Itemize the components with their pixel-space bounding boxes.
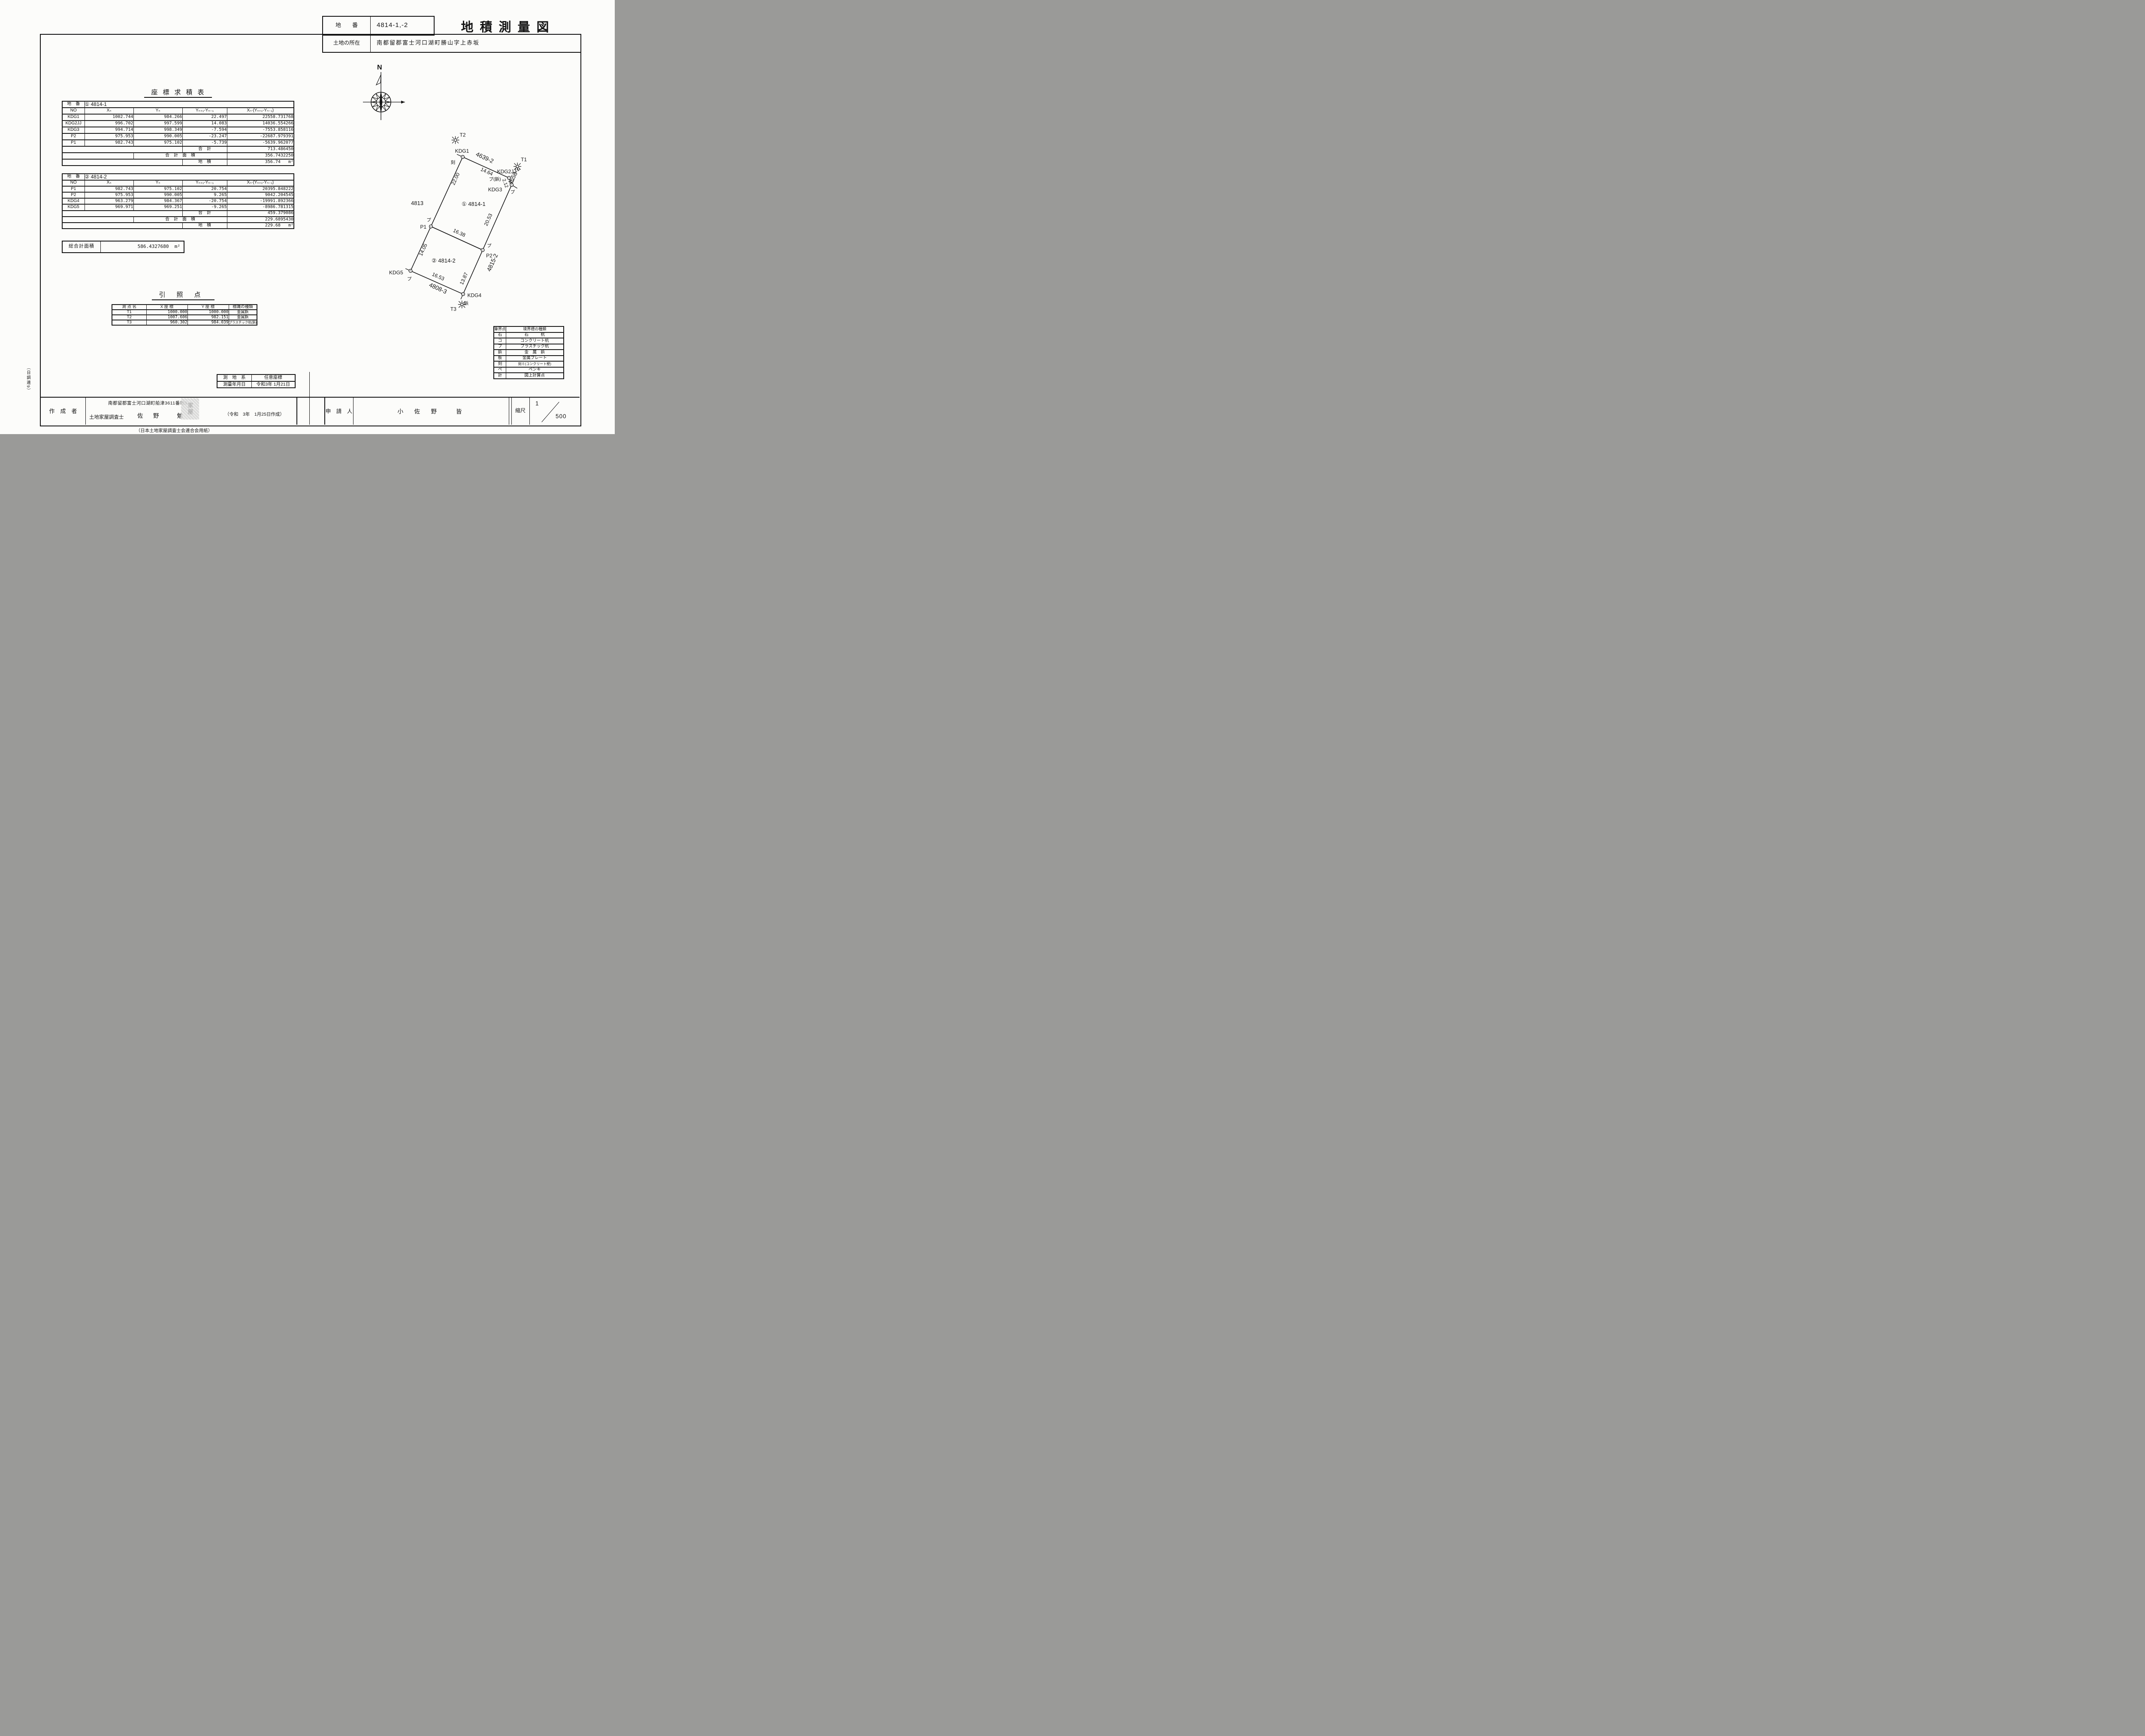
- coord-table-2-cell: -19991.892366: [227, 198, 294, 204]
- coord-table-1-cell: 22.497: [182, 114, 227, 121]
- marker-legend-cell: コンクリート杭: [506, 338, 564, 344]
- station-marker-ray-T3: [459, 306, 461, 308]
- station-marker-ray-T2: [452, 142, 454, 144]
- creator-role: 土地家屋調査士: [89, 414, 124, 420]
- coord-table-1-cell: 356.7432250: [227, 153, 294, 159]
- coord-table-1-cell: Xₙ: [85, 108, 133, 114]
- coord-table-1-cell: -5639.962077: [227, 140, 294, 146]
- coord-table-1-cell: 22558.731768: [227, 114, 294, 121]
- bottom-margin-note: （日本土地家屋調査士会連合会用紙）: [86, 427, 263, 434]
- coord-table-2-cell: 969.971: [85, 204, 133, 210]
- coord-table-1-cell: -5.739: [182, 140, 227, 146]
- coord-table-1-cell: 14.083: [182, 121, 227, 127]
- survey-plot: 14.644639-22.1220.5313.8716.534808-314.0…: [352, 60, 581, 338]
- survey-info-cell: 令和3年 1月21日: [251, 381, 295, 388]
- point-marker-dot-P2: [482, 250, 483, 251]
- coord-table-title: 座標求積表: [62, 88, 294, 97]
- reference-points-cell: 1000.000: [146, 310, 187, 315]
- lot-area-label: ② 4814-2: [432, 257, 456, 264]
- point-label-KDG2JJ: KDG2JJ: [497, 169, 517, 175]
- station-marker-ray-T3: [459, 301, 461, 303]
- marker-legend-cell: プ: [494, 344, 506, 350]
- station-marker-ray-T2: [456, 142, 459, 144]
- lot-number-label: 地 番: [323, 17, 371, 35]
- coord-table-2-cell: 990.005: [133, 192, 182, 198]
- station-marker-circle-T1: [516, 165, 519, 168]
- edge-label: 20.53: [483, 212, 493, 226]
- coord-table-2-cell: 20395.848222: [227, 186, 294, 192]
- marker-legend-cell: プラスチック杭: [506, 344, 564, 350]
- marker-legend-cell: ペンキ: [506, 367, 564, 373]
- point-label-T3: T3: [450, 306, 456, 312]
- marker-legend-cell: 板: [494, 356, 506, 362]
- point-marker-dot-KDG5: [410, 270, 411, 271]
- edge-label: 16.38: [452, 227, 466, 238]
- point-label-KDG1: KDG1: [455, 148, 469, 154]
- coord-table-2-cell: [62, 211, 182, 217]
- coord-table-1: 地 番① 4814-1NOXₙYₙYₙ₊₁-Yₙ₋₁Xₙ·(Yₙ₊₁-Yₙ₋₁)…: [62, 101, 294, 166]
- coord-table-1-cell: -23.247: [182, 133, 227, 140]
- creator-address: 南都留郡富士河口湖町船津3611番地9: [108, 400, 187, 406]
- applicant-name: 小 佐 野 皆: [353, 407, 509, 415]
- reference-points-cell: 測 点 名: [112, 305, 146, 310]
- point-label-KDG4: KDG4: [467, 293, 481, 299]
- coord-table-1-cell: P2: [62, 133, 85, 140]
- coord-table-2-cell: 9.265: [182, 192, 227, 198]
- reference-points-cell: 982.151: [187, 315, 229, 320]
- lot-area-label: ① 4814-1: [462, 201, 486, 207]
- coord-table-1-cell: [62, 153, 133, 159]
- coord-table-2-cell: 9042.204545: [227, 192, 294, 198]
- created-date: （令和 3年 1月25日作成）: [225, 411, 284, 417]
- coord-table-2-cell: Xₙ·(Yₙ₊₁-Yₙ₋₁): [227, 180, 294, 186]
- reference-points-cell: 984.039: [187, 320, 229, 325]
- survey-info-cell: 測量年月日: [217, 381, 251, 388]
- coord-table-1-cell: 990.005: [133, 133, 182, 140]
- coord-table-2-cell: P1: [62, 186, 85, 192]
- reference-points-cell: プラスチック杭(鋲): [229, 320, 257, 325]
- north-label: N: [377, 64, 382, 71]
- reference-points-cell: 金属鋲: [229, 310, 257, 315]
- map-title: 地積測量図: [434, 17, 582, 35]
- reference-points: 測 点 名X 座 標Y 座 標標識の種類T11000.0001000.000金属…: [112, 304, 257, 326]
- coord-table-parcel2: 地 番② 4814-2NOXₙYₙYₙ₊₁-Yₙ₋₁Xₙ·(Yₙ₊₁-Yₙ₋₁)…: [62, 173, 294, 229]
- marker-legend-cell: 鋲: [494, 350, 506, 356]
- reference-points-cell: Y 座 標: [187, 305, 229, 310]
- coord-table-2-cell: 975.953: [85, 192, 133, 198]
- coord-table-1-cell: [62, 146, 182, 153]
- coord-table-1-cell: 975.102: [133, 140, 182, 146]
- point-marker-dot-P1: [430, 226, 431, 227]
- land-location-value: 南都留郡富士河口湖町勝山字上赤坂: [371, 35, 580, 52]
- reference-table-title: 引照点: [112, 290, 255, 299]
- marker-type-note-KDG4: 鋲: [464, 301, 468, 306]
- coord-table-2-cell: 969.251: [133, 204, 182, 210]
- reference-points-cell: X 座 標: [146, 305, 187, 310]
- point-marker-dot-KDG4: [463, 294, 464, 295]
- scale-label-divider: [529, 398, 530, 425]
- reference-table: 測 点 名X 座 標Y 座 標標識の種類T11000.0001000.000金属…: [112, 304, 257, 326]
- coord-table-2-cell: 459.379086: [227, 211, 294, 217]
- coord-table-1-cell: 994.714: [85, 127, 133, 133]
- point-marker-dot-KDG1: [462, 157, 463, 157]
- coord-table-2-cell: 229.6895430: [227, 217, 294, 223]
- coord-table-2-cell: KDG5: [62, 204, 85, 210]
- coord-table-2-cell: 20.754: [182, 186, 227, 192]
- station-marker-circle-T2: [454, 139, 456, 142]
- marker-legend-cell: 図上計算点: [506, 373, 564, 379]
- coord-table-1-cell: 地 積: [182, 159, 227, 166]
- coord-table-1-cell: 996.702: [85, 121, 133, 127]
- marker-legend-cell: ペ: [494, 367, 506, 373]
- coord-table-1-cell: 997.599: [133, 121, 182, 127]
- station-marker-ray-T2: [456, 137, 459, 139]
- coord-table-2-cell: 地 番: [62, 174, 85, 180]
- marker-type-note-P2: プ: [487, 243, 492, 248]
- coord-table-2-cell: Yₙ: [133, 180, 182, 186]
- coord-table-1-cell: Yₙ₊₁-Yₙ₋₁: [182, 108, 227, 114]
- coord-table-1-cell: -7553.858116: [227, 127, 294, 133]
- edge-label: 22.00: [450, 172, 461, 186]
- footer-top-rule: [40, 397, 580, 398]
- coord-table-1-cell: Xₙ·(Yₙ₊₁-Yₙ₋₁): [227, 108, 294, 114]
- coord-table-1-cell: 合 計 面 積: [133, 153, 227, 159]
- coord-table-2-cell: ② 4814-2: [85, 174, 294, 180]
- point-label-T2: T2: [459, 132, 465, 138]
- scale-fraction-denominator: 500: [556, 413, 567, 420]
- coord-table-1-cell: P1: [62, 140, 85, 146]
- reference-points-cell: 1007.606: [146, 315, 187, 320]
- coord-table-1-cell: 地 番: [62, 101, 85, 108]
- coord-table-2-cell: 229.68 m²: [227, 223, 294, 229]
- marker-legend-cell: 刻ミ(コンクリート壁): [506, 361, 564, 367]
- creator-label-divider: [85, 398, 86, 425]
- marker-legend-cell: コ: [494, 338, 506, 344]
- station-marker-ray-T1: [519, 163, 521, 166]
- coord-table-2-cell: 963.279: [85, 198, 133, 204]
- coord-table-1-cell: KDG2JJ: [62, 121, 85, 127]
- coord-table-2-cell: NO: [62, 180, 85, 186]
- grand-total-value: 586.4327680 m²: [101, 242, 184, 252]
- coord-table-2-cell: 982.743: [85, 186, 133, 192]
- coord-table-1-cell: [62, 159, 182, 166]
- coord-table-2-cell: KDG4: [62, 198, 85, 204]
- coord-table-2-cell: P2: [62, 192, 85, 198]
- coord-table-1-cell: 998.349: [133, 127, 182, 133]
- reference-points-cell: 960.302: [146, 320, 187, 325]
- coord-table-2-cell: 984.367: [133, 198, 182, 204]
- coord-table-1-cell: KDG1: [62, 114, 85, 121]
- coord-table-2-cell: [62, 217, 133, 223]
- marker-legend-cell: 刻: [494, 361, 506, 367]
- coord-table-2: 地 番② 4814-2NOXₙYₙYₙ₊₁-Yₙ₋₁Xₙ·(Yₙ₊₁-Yₙ₋₁)…: [62, 173, 294, 229]
- marker-type-note-KDG3: プ: [511, 190, 515, 195]
- scale-fraction-numerator: 1: [535, 400, 539, 407]
- creator-block-right-border: [296, 398, 297, 425]
- coord-table-1-cell: 984.266: [133, 114, 182, 121]
- marker-type-note-KDG1: 刻: [451, 160, 456, 165]
- coord-table-parcel1: 地 番① 4814-1NOXₙYₙYₙ₊₁-Yₙ₋₁Xₙ·(Yₙ₊₁-Yₙ₋₁)…: [62, 101, 294, 166]
- coord-table-1-cell: 975.953: [85, 133, 133, 140]
- lot-area-label: 4813: [411, 200, 423, 206]
- point-label-P2: P2: [486, 253, 492, 259]
- coord-table-2-cell: [62, 223, 182, 229]
- marker-type-note-P1: プ: [426, 217, 431, 223]
- point-label-T1: T1: [521, 157, 527, 163]
- marker-legend-cell: 計: [494, 373, 506, 379]
- point-label-KDG3: KDG3: [488, 187, 502, 193]
- survey-info-cell: 測 地 系: [217, 374, 251, 381]
- scale-label: 縮尺: [511, 407, 529, 414]
- reference-points-cell: T3: [112, 320, 146, 325]
- north-pennant: [376, 75, 381, 85]
- point-marker-dot-KDG3: [511, 184, 512, 185]
- coord-table-1-cell: 14036.554266: [227, 121, 294, 127]
- lot-number-value: 4814-1,-2: [371, 17, 434, 35]
- station-marker-ray-T1: [514, 163, 517, 166]
- coord-table-2-cell: Yₙ₊₁-Yₙ₋₁: [182, 180, 227, 186]
- coord-table-1-cell: 1002.744: [85, 114, 133, 121]
- coord-table-1-cell: Yₙ: [133, 108, 182, 114]
- coord-table-1-cell: KDG3: [62, 127, 85, 133]
- coord-table-2-cell: 合 計 面 積: [133, 217, 227, 223]
- coord-table-1-cell: 合 計: [182, 146, 227, 153]
- compass-east-arrow: [401, 101, 405, 104]
- reference-points-cell: 標識の種類: [229, 305, 257, 310]
- land-location-row: 土地の所在 南都留郡富士河口湖町勝山字上赤坂: [322, 34, 581, 53]
- creator-label: 作 成 者: [42, 407, 84, 415]
- land-location-label: 土地の所在: [323, 35, 371, 52]
- applicant-label: 申 請 人: [325, 407, 353, 415]
- coord-table-2-cell: -20.754: [182, 198, 227, 204]
- reference-points-cell: T2: [112, 315, 146, 320]
- marker-type-note-KDG5: プ: [407, 276, 412, 281]
- coord-table-1-cell: -22687.979391: [227, 133, 294, 140]
- station-marker-circle-T3: [461, 303, 463, 306]
- coord-table-2-cell: -9.265: [182, 204, 227, 210]
- coord-table-1-cell: ① 4814-1: [85, 101, 294, 108]
- grand-total-label: 総合計面積: [63, 242, 101, 252]
- reference-points-cell: 1000.000: [187, 310, 229, 315]
- coord-table-1-cell: 713.486450: [227, 146, 294, 153]
- coord-table-2-cell: 合 計: [182, 211, 227, 217]
- station-marker-ray-T2: [452, 137, 454, 139]
- survey-map-sheet: （日調連9） （日本土地家屋調査士会連合会用紙） 地 番 4814-1,-2 地…: [0, 0, 615, 434]
- coord-table-1-cell: 982.743: [85, 140, 133, 146]
- coord-table-1-cell: 356.74 m²: [227, 159, 294, 166]
- coord-table-2-cell: 地 積: [182, 223, 227, 229]
- coord-table-2-cell: 975.102: [133, 186, 182, 192]
- survey-info-box: 測 地 系任意座標測量年月日令和3年 1月21日: [217, 374, 296, 388]
- edge-label: 16.53: [431, 271, 445, 282]
- surveyor-seal: 家屋: [181, 398, 199, 420]
- edge-label: 4639-2: [475, 151, 495, 165]
- divider-line: [309, 372, 310, 425]
- lot-number-box: 地 番 4814-1,-2: [322, 16, 435, 36]
- point-marker-dot-KDG2JJ: [509, 178, 510, 178]
- edge-label: 14.05: [418, 242, 429, 257]
- survey-info: 測 地 系任意座標測量年月日令和3年 1月21日: [217, 374, 296, 388]
- coord-table-1-cell: -7.594: [182, 127, 227, 133]
- marker-type-note-KDG2JJ: プ(鋲): [489, 176, 501, 182]
- left-margin-note: （日調連9）: [25, 365, 31, 393]
- coord-table-2-cell: Xₙ: [85, 180, 133, 186]
- point-label-P1: P1: [420, 224, 426, 230]
- coord-table-1-cell: NO: [62, 108, 85, 114]
- grand-total-box: 総合計面積 586.4327680 m²: [62, 241, 184, 253]
- marker-legend-cell: 金属プレート: [506, 356, 564, 362]
- reference-points-cell: 金属鋲: [229, 315, 257, 320]
- scale-double-line-1: [509, 398, 509, 425]
- marker-legend-cell: 金 属 鋲: [506, 350, 564, 356]
- reference-points-cell: T1: [112, 310, 146, 315]
- coord-table-2-cell: -8986.781315: [227, 204, 294, 210]
- survey-info-cell: 任意座標: [251, 374, 295, 381]
- point-label-KDG5: KDG5: [389, 269, 403, 275]
- creator-name: 佐 野 勉: [137, 411, 185, 420]
